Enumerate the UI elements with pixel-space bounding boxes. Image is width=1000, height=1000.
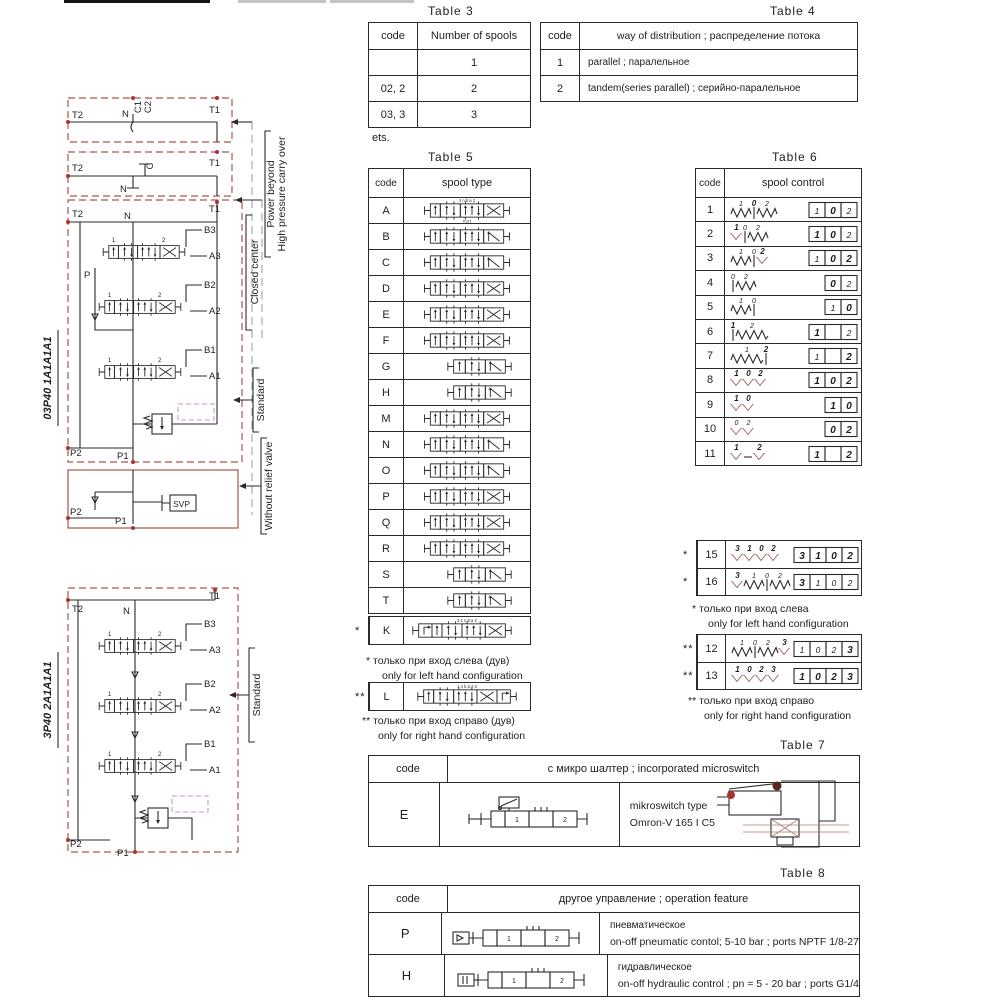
svg-text:3: 3 bbox=[735, 571, 740, 580]
control-code-cell: 7 bbox=[696, 344, 724, 367]
port-label-a2: A2 bbox=[209, 306, 221, 317]
svg-text:0: 0 bbox=[830, 206, 836, 217]
spool-symbol-cell bbox=[403, 328, 530, 353]
spool-symbol-cell: 3 1 n b a 2 bbox=[403, 617, 530, 644]
actuated-valve-symbol: 12 bbox=[456, 956, 596, 996]
table-row: 100202 bbox=[696, 417, 861, 441]
svg-text:2: 2 bbox=[777, 573, 782, 580]
spool-symbol-cell bbox=[403, 484, 530, 509]
table-6-extra-15-16: *1531023102*1631023102 bbox=[696, 540, 862, 596]
main-circuit-1: T2 N T1 B3 A3 P B2 A2 B1 A1 P2 P1 121212 bbox=[66, 200, 242, 464]
port-label-p2: P2 bbox=[70, 507, 82, 518]
port-label-b1: B1 bbox=[204, 739, 216, 750]
code-cell bbox=[369, 50, 417, 75]
svg-text:1: 1 bbox=[739, 298, 743, 305]
svg-text:3: 3 bbox=[782, 638, 787, 647]
svg-text:2: 2 bbox=[158, 692, 162, 698]
hydraulic-circuit-diagrams: T2 N C1 C2 T1 T2 C N T1 T2 bbox=[0, 0, 340, 1000]
spool-code-cell: T bbox=[369, 588, 403, 613]
svg-text:2: 2 bbox=[158, 632, 162, 638]
port-label-b2: B2 bbox=[204, 280, 216, 291]
svg-text:0: 0 bbox=[830, 254, 836, 265]
spool-symbol-cell bbox=[403, 380, 530, 405]
table-3-footnote: ets. bbox=[372, 132, 390, 144]
spool-symbol-cell bbox=[403, 458, 530, 483]
svg-text:1: 1 bbox=[108, 293, 112, 299]
spool-symbol bbox=[405, 302, 529, 327]
svg-text:1: 1 bbox=[739, 249, 743, 256]
spool-symbol-cell bbox=[403, 354, 530, 379]
svg-text:1: 1 bbox=[814, 230, 820, 241]
spool-symbol bbox=[405, 354, 529, 379]
svg-text:1 n b a 2: 1 n b a 2 bbox=[459, 198, 476, 203]
table-row: H bbox=[369, 379, 530, 405]
svg-text:2: 2 bbox=[764, 201, 769, 208]
control-code-cell: 1 bbox=[696, 198, 724, 221]
asterisk-mark: ** bbox=[688, 695, 696, 707]
column-header-code: code bbox=[369, 886, 447, 912]
table-row: **L1 n b a 2 3 bbox=[369, 683, 530, 710]
svg-text:2: 2 bbox=[845, 352, 852, 363]
asterisk-mark: * bbox=[355, 625, 360, 637]
table-row: 71212 bbox=[696, 343, 861, 367]
svg-text:2: 2 bbox=[846, 328, 852, 338]
control-symbol-cell: 1212 bbox=[724, 344, 861, 367]
spool-control-symbol: 10231023 bbox=[727, 664, 861, 688]
port-label-n: N bbox=[124, 211, 131, 222]
svg-text:1: 1 bbox=[735, 665, 740, 674]
column-header-code: code bbox=[369, 169, 403, 197]
spool-control-symbol: 31023102 bbox=[727, 543, 861, 567]
microswitch-drawing bbox=[715, 775, 855, 854]
table-5: code spool type A1 n b a 2n p tBCDEFGHMN… bbox=[368, 168, 531, 614]
svg-text:2: 2 bbox=[845, 376, 852, 387]
actuated-valve-symbol: 12 bbox=[451, 914, 591, 954]
spool-symbol bbox=[405, 432, 529, 457]
table-row: N bbox=[369, 431, 530, 457]
footnote-left-hand: * только при вход слева only for left ha… bbox=[692, 602, 849, 631]
control-symbol-cell: 1212 bbox=[724, 320, 861, 343]
spool-control-symbol: 102102 bbox=[726, 222, 860, 246]
svg-text:1: 1 bbox=[814, 376, 820, 387]
port-label-t1: T1 bbox=[209, 105, 220, 116]
control-symbol-cell: 102102 bbox=[724, 247, 861, 270]
description-cell: пневматическоеon-off pneumatic contol; 5… bbox=[599, 913, 859, 954]
port-label-n: N bbox=[122, 109, 129, 120]
control-symbol-cell: 0202 bbox=[724, 418, 861, 441]
control-code-cell: 2 bbox=[696, 222, 724, 245]
control-symbol-cell: 10231023 bbox=[725, 635, 861, 662]
table-row: E 12 mikroswitch type Omron-V 165 I C5 bbox=[369, 782, 859, 846]
table-row: C bbox=[369, 249, 530, 275]
table-row: B bbox=[369, 223, 530, 249]
svg-text:2: 2 bbox=[846, 578, 852, 588]
svg-text:0: 0 bbox=[831, 578, 836, 588]
spool-symbol bbox=[405, 588, 529, 613]
svg-text:1: 1 bbox=[739, 201, 743, 208]
table-row: 8102102 bbox=[696, 368, 861, 392]
spool-symbol bbox=[405, 250, 529, 275]
port-label-n: N bbox=[123, 606, 130, 617]
footnote-right-hand: ** только при вход справо only for right… bbox=[688, 694, 851, 723]
microswitch-valve-symbol: 12 bbox=[439, 783, 619, 846]
control-code-cell: 5 bbox=[696, 296, 724, 319]
svg-text:0: 0 bbox=[765, 573, 769, 580]
table-row: T bbox=[369, 587, 530, 613]
svg-text:1: 1 bbox=[815, 352, 820, 362]
column-header-code: code bbox=[696, 169, 724, 197]
control-code-cell: 4 bbox=[696, 271, 724, 294]
table-3-title: Table 3 bbox=[428, 4, 474, 18]
svg-text:3: 3 bbox=[771, 665, 776, 674]
svg-text:2: 2 bbox=[563, 817, 567, 824]
svg-text:2: 2 bbox=[758, 665, 764, 674]
svg-text:2: 2 bbox=[755, 225, 760, 232]
svg-text:2: 2 bbox=[162, 238, 166, 244]
column-header-code: code bbox=[369, 756, 447, 782]
svg-text:2: 2 bbox=[846, 230, 852, 240]
table-4-title: Table 4 bbox=[770, 4, 816, 18]
svg-text:1: 1 bbox=[108, 632, 112, 638]
value-cell: 2 bbox=[417, 76, 530, 101]
footnote-right-hand: ** только при вход справо (дув) only for… bbox=[362, 714, 525, 743]
spool-control-symbol: 1010 bbox=[726, 393, 860, 417]
control-code-cell: 6 bbox=[696, 320, 724, 343]
svg-text:0: 0 bbox=[743, 225, 747, 232]
spool-symbol-cell bbox=[403, 406, 530, 431]
value-cell: 1 bbox=[417, 50, 530, 75]
table-row: 61212 bbox=[696, 319, 861, 343]
value-cell: tandem(series parallel) ; серийно-парале… bbox=[579, 76, 857, 101]
svg-text:2: 2 bbox=[830, 645, 836, 655]
port-label-a1: A1 bbox=[209, 765, 221, 776]
table-row: 51010 bbox=[696, 295, 861, 319]
svg-text:1: 1 bbox=[799, 672, 805, 683]
svg-text:1 n b a 2 3: 1 n b a 2 3 bbox=[457, 684, 477, 689]
port-label-p1: P1 bbox=[117, 848, 129, 859]
spool-code-cell: G bbox=[369, 354, 403, 379]
port-label-t1: T1 bbox=[209, 204, 220, 215]
svg-text:0: 0 bbox=[747, 665, 752, 674]
table-6-extra-12-13: **1210231023**1310231023 bbox=[696, 634, 862, 690]
spool-symbol bbox=[405, 458, 529, 483]
control-code-cell: 11 bbox=[696, 442, 724, 465]
control-symbol-cell: 1010 bbox=[724, 296, 861, 319]
table-8: code другое управление ; operation featu… bbox=[368, 885, 860, 997]
spool-control-symbol: 0202 bbox=[726, 417, 860, 441]
table-row: 2102102 bbox=[696, 221, 861, 245]
spool-symbol-cell bbox=[403, 536, 530, 561]
description-cell: гидравлическоеon-off hydraulic control ;… bbox=[607, 955, 859, 996]
port-label-p2: P2 bbox=[70, 448, 82, 459]
control-symbol-cell: 102102 bbox=[724, 198, 861, 221]
asterisk-mark: * bbox=[692, 603, 696, 615]
spool-code-cell: O bbox=[369, 458, 403, 483]
asterisk-mark: * bbox=[683, 549, 688, 561]
column-header-code: code bbox=[541, 23, 579, 49]
svg-text:3: 3 bbox=[799, 551, 805, 562]
code-cell: E bbox=[369, 783, 439, 846]
spool-control-symbol: 0202 bbox=[726, 271, 860, 295]
spool-control-symbol: 102102 bbox=[726, 246, 860, 270]
table-6: code spool control 110210221021023102102… bbox=[695, 168, 862, 466]
control-code-cell: 15 bbox=[697, 541, 725, 568]
power-beyond-section: T2 N C1 C2 T1 bbox=[66, 96, 232, 142]
svg-text:1: 1 bbox=[108, 752, 112, 758]
svg-text:1: 1 bbox=[515, 817, 519, 824]
asterisk-mark: ** bbox=[355, 691, 366, 703]
spool-code-cell: Q bbox=[369, 510, 403, 535]
table-7-title: Table 7 bbox=[780, 738, 826, 752]
svg-text:1: 1 bbox=[112, 238, 116, 244]
spool-symbol bbox=[405, 562, 529, 587]
svg-text:0: 0 bbox=[752, 249, 756, 256]
table-3: code Number of spools 102, 2203, 33 bbox=[368, 22, 531, 128]
note-en: only for right hand configuration bbox=[378, 729, 525, 744]
svg-text:3 1 n b a 2: 3 1 n b a 2 bbox=[457, 618, 477, 623]
svg-text:1: 1 bbox=[734, 369, 739, 378]
spool-code-cell: L bbox=[369, 683, 403, 710]
control-symbol-cell: 0202 bbox=[724, 271, 861, 294]
main-circuit-2: T2 T1 N B3 A3 B2 A2 B1 A1 P2 P1 121212 bbox=[66, 588, 238, 859]
spool-code-cell: K bbox=[369, 617, 403, 644]
table-row: **1310231023 bbox=[697, 662, 861, 689]
svg-text:0: 0 bbox=[830, 279, 836, 290]
port-label-p2: P2 bbox=[70, 839, 82, 850]
spool-symbol bbox=[405, 380, 529, 405]
port-label-a1: A1 bbox=[209, 371, 221, 382]
spool-symbol-cell bbox=[403, 510, 530, 535]
spool-symbol-cell: 1 n b a 2n p t bbox=[403, 198, 530, 223]
spool-control-symbol: 1212 bbox=[726, 344, 860, 368]
spool-symbol-cell bbox=[403, 302, 530, 327]
svg-text:2: 2 bbox=[560, 978, 564, 985]
value-cell: parallel ; паралельное bbox=[579, 50, 857, 75]
control-symbol-cell: 10231023 bbox=[725, 663, 861, 689]
control-symbol-cell: 102102 bbox=[724, 369, 861, 392]
asterisk-mark: * bbox=[683, 576, 688, 588]
spool-control-symbol: 102102 bbox=[726, 198, 860, 222]
spool-control-symbol: 1010 bbox=[726, 295, 860, 319]
svg-text:2: 2 bbox=[770, 544, 776, 553]
svg-text:0: 0 bbox=[830, 425, 836, 436]
control-symbol-cell: 1010 bbox=[724, 393, 861, 416]
svg-text:0: 0 bbox=[752, 199, 757, 208]
table-6-title: Table 6 bbox=[772, 150, 818, 164]
svg-text:2: 2 bbox=[756, 443, 762, 452]
without-relief-section: P2 P1 SVP bbox=[66, 470, 238, 530]
control-symbol-cell: 31023102 bbox=[725, 541, 861, 568]
svg-text:1: 1 bbox=[815, 254, 820, 264]
port-label-p: P bbox=[84, 270, 90, 281]
svg-text:2: 2 bbox=[845, 450, 852, 461]
spool-code-cell: D bbox=[369, 276, 403, 301]
footnote-left-hand: * только при вход слева (дув) only for l… bbox=[366, 654, 523, 683]
port-label-c: C bbox=[145, 162, 156, 169]
code-cell: P bbox=[369, 913, 441, 954]
side-annotations-1: Power beyond High pressure carry over Cl… bbox=[42, 119, 288, 534]
svg-text:1: 1 bbox=[512, 978, 516, 985]
svg-text:1: 1 bbox=[752, 573, 756, 580]
note-ru: только при вход слева (дув) bbox=[373, 655, 509, 667]
table-row: D bbox=[369, 275, 530, 301]
port-label-b2: B2 bbox=[204, 679, 216, 690]
svg-text:1: 1 bbox=[740, 640, 744, 647]
svg-text:3: 3 bbox=[847, 672, 853, 683]
table-row: 03, 33 bbox=[369, 101, 530, 127]
svg-text:0: 0 bbox=[831, 551, 837, 562]
table-row: E bbox=[369, 301, 530, 327]
spool-symbol bbox=[405, 276, 529, 301]
spool-code-cell: R bbox=[369, 536, 403, 561]
svg-text:1: 1 bbox=[108, 358, 112, 364]
spool-code-cell: E bbox=[369, 302, 403, 327]
side-label-closed-center: Closed center bbox=[249, 239, 261, 304]
svg-text:3: 3 bbox=[799, 578, 805, 589]
spool-code-cell: H bbox=[369, 380, 403, 405]
port-label-c2: C2 bbox=[143, 101, 154, 113]
svg-text:1: 1 bbox=[830, 401, 836, 412]
side-label-without-relief: Without relief valve bbox=[263, 441, 275, 530]
asterisk-mark: ** bbox=[683, 670, 694, 682]
svg-text:3: 3 bbox=[847, 645, 853, 656]
svp-label: SVP bbox=[173, 499, 190, 509]
spool-symbol bbox=[405, 406, 529, 431]
svg-text:2: 2 bbox=[846, 206, 852, 216]
spool-code-cell: A bbox=[369, 198, 403, 223]
port-label-p1: P1 bbox=[117, 451, 129, 462]
column-header-code: code bbox=[369, 23, 417, 49]
spool-control-symbol: 102102 bbox=[726, 368, 860, 392]
svg-text:0: 0 bbox=[746, 369, 751, 378]
value-cell: 3 bbox=[417, 102, 530, 127]
actuated-valve-symbol: 12 bbox=[459, 795, 599, 835]
table-8-title: Table 8 bbox=[780, 866, 826, 880]
svg-text:1: 1 bbox=[815, 206, 820, 216]
table-5-row-k: *K3 1 n b a 2 bbox=[368, 616, 531, 645]
column-header-distribution: way of distribution ; распределение пото… bbox=[579, 23, 857, 49]
svg-text:2: 2 bbox=[749, 323, 754, 330]
port-label-a3: A3 bbox=[209, 645, 221, 656]
table-7: code с микро шалтер ; incorporated micro… bbox=[368, 755, 860, 847]
table-row: F bbox=[369, 327, 530, 353]
svg-text:1: 1 bbox=[831, 303, 836, 313]
table-row: P12пневматическоеon-off pneumatic contol… bbox=[369, 912, 859, 954]
microswitch-model-label: Omron-V 165 I C5 bbox=[630, 817, 715, 829]
table-row: *1531023102 bbox=[697, 541, 861, 568]
svg-text:0: 0 bbox=[731, 274, 735, 281]
table-row: H12гидравлическоеon-off hydraulic contro… bbox=[369, 954, 859, 996]
spool-symbol-cell bbox=[403, 588, 530, 613]
table-row: **1210231023 bbox=[697, 635, 861, 662]
port-label-p1: P1 bbox=[115, 516, 127, 527]
table-row: 91010 bbox=[696, 392, 861, 416]
control-code-cell: 16 bbox=[697, 569, 725, 595]
description-cell: mikroswitch type Omron-V 165 I C5 bbox=[619, 783, 859, 846]
svg-text:2: 2 bbox=[759, 247, 765, 256]
port-label-t2: T2 bbox=[72, 163, 83, 174]
svg-text:2: 2 bbox=[158, 752, 162, 758]
note-ru: только при вход слева bbox=[699, 603, 809, 615]
code-cell: 2 bbox=[541, 76, 579, 101]
table-row: *1631023102 bbox=[697, 568, 861, 595]
spool-code-cell: M bbox=[369, 406, 403, 431]
table-row: R bbox=[369, 535, 530, 561]
svg-text:0: 0 bbox=[759, 544, 764, 553]
top-crop-bar bbox=[330, 0, 414, 3]
table-row: M bbox=[369, 405, 530, 431]
svg-text:0: 0 bbox=[815, 672, 821, 683]
svg-text:1: 1 bbox=[815, 551, 821, 562]
spool-control-symbol: 1212 bbox=[726, 320, 860, 344]
column-header-spools: Number of spools bbox=[417, 23, 530, 49]
control-code-cell: 8 bbox=[696, 369, 724, 392]
spool-code-cell: F bbox=[369, 328, 403, 353]
table-5-row-l: **L1 n b a 2 3 bbox=[368, 682, 531, 711]
spool-symbol-cell bbox=[403, 250, 530, 275]
svg-text:2: 2 bbox=[846, 551, 853, 562]
table-row: 1 bbox=[369, 49, 530, 75]
port-label-b3: B3 bbox=[204, 225, 216, 236]
side-annotations-2: Standard 3P40 2A1A1A1 bbox=[42, 648, 263, 748]
svg-text:1: 1 bbox=[731, 321, 736, 330]
actuator-symbol-cell: 12 bbox=[444, 955, 607, 996]
spool-control-symbol: 31023102 bbox=[727, 570, 861, 594]
spool-symbol bbox=[405, 328, 529, 353]
spool-symbol-cell bbox=[403, 276, 530, 301]
spool-symbol-cell bbox=[403, 432, 530, 457]
svg-text:2: 2 bbox=[158, 293, 162, 299]
port-label-a2: A2 bbox=[209, 705, 221, 716]
control-code-cell: 3 bbox=[696, 247, 724, 270]
spool-symbol bbox=[405, 224, 529, 249]
control-symbol-cell: 102102 bbox=[724, 222, 861, 245]
note-ru: только при вход справо bbox=[699, 695, 814, 707]
port-label-n: N bbox=[120, 184, 127, 195]
asterisk-mark: ** bbox=[362, 715, 370, 727]
svg-text:2: 2 bbox=[763, 345, 769, 354]
asterisk-mark: ** bbox=[683, 643, 694, 655]
description-en: on-off pneumatic contol; 5-10 bar ; port… bbox=[610, 936, 859, 948]
svg-text:1: 1 bbox=[734, 394, 739, 403]
svg-text:0: 0 bbox=[752, 298, 756, 305]
table-row: 1parallel ; паралельное bbox=[541, 49, 857, 75]
spool-symbol: 3 1 n b a 2 bbox=[405, 618, 529, 643]
spool-code-cell: N bbox=[369, 432, 403, 457]
spool-symbol: 1 n b a 2n p t bbox=[405, 198, 529, 223]
table-row: G bbox=[369, 353, 530, 379]
table-row: A1 n b a 2n p t bbox=[369, 197, 530, 223]
svg-text:0: 0 bbox=[830, 230, 836, 241]
table-row: 1102102 bbox=[696, 197, 861, 221]
svg-text:2: 2 bbox=[746, 420, 751, 427]
svg-text:2: 2 bbox=[555, 936, 559, 943]
code-cell: 02, 2 bbox=[369, 76, 417, 101]
svg-text:2: 2 bbox=[743, 274, 748, 281]
code-cell: 03, 3 bbox=[369, 102, 417, 127]
column-header-spool-type: spool type bbox=[403, 169, 530, 197]
control-symbol-cell: 31023102 bbox=[725, 569, 861, 595]
svg-text:1: 1 bbox=[745, 347, 749, 354]
svg-text:1: 1 bbox=[799, 645, 804, 655]
spool-code-cell: B bbox=[369, 224, 403, 249]
spool-symbol-cell bbox=[403, 562, 530, 587]
spool-code-cell: P bbox=[369, 484, 403, 509]
table-row: *K3 1 n b a 2 bbox=[369, 617, 530, 644]
svg-text:1: 1 bbox=[747, 544, 752, 553]
spool-control-symbol: 1212 bbox=[726, 442, 860, 466]
spool-symbol bbox=[405, 510, 529, 535]
